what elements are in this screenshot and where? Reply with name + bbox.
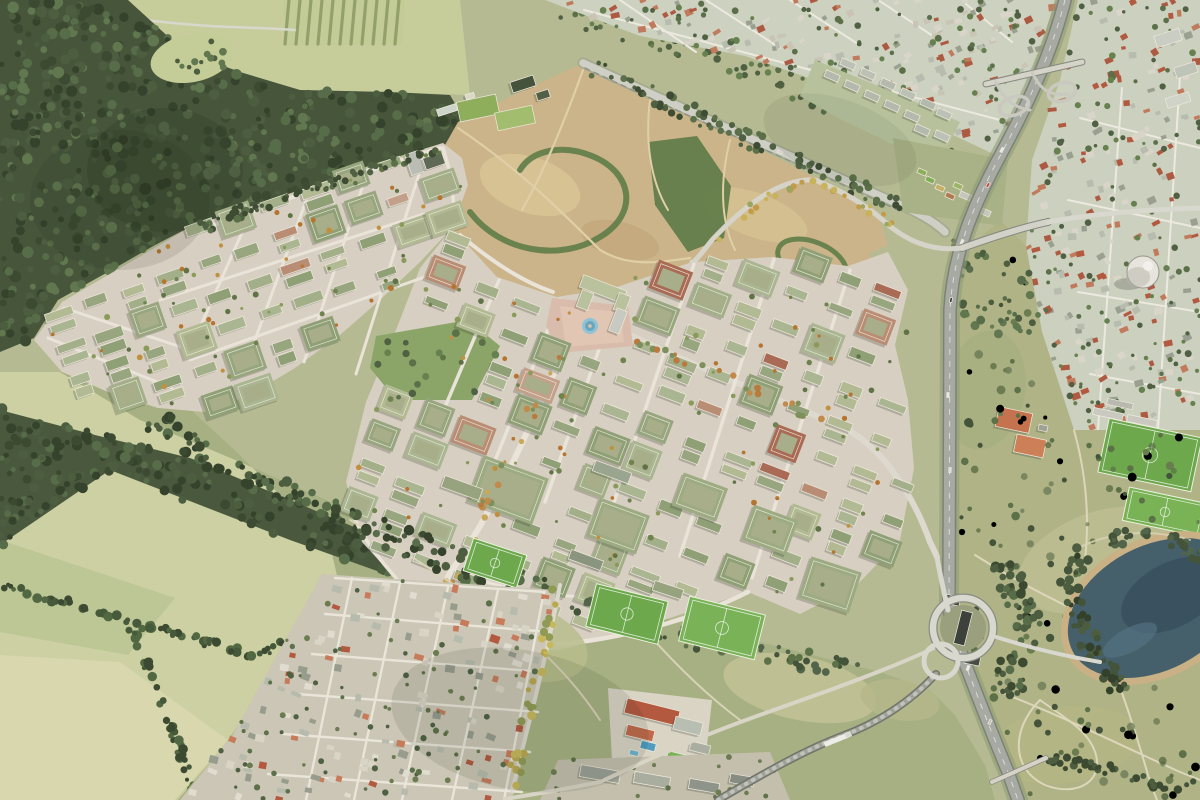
aerial-scene-svg — [0, 0, 1200, 800]
aerial-masterplan-render — [0, 0, 1200, 800]
